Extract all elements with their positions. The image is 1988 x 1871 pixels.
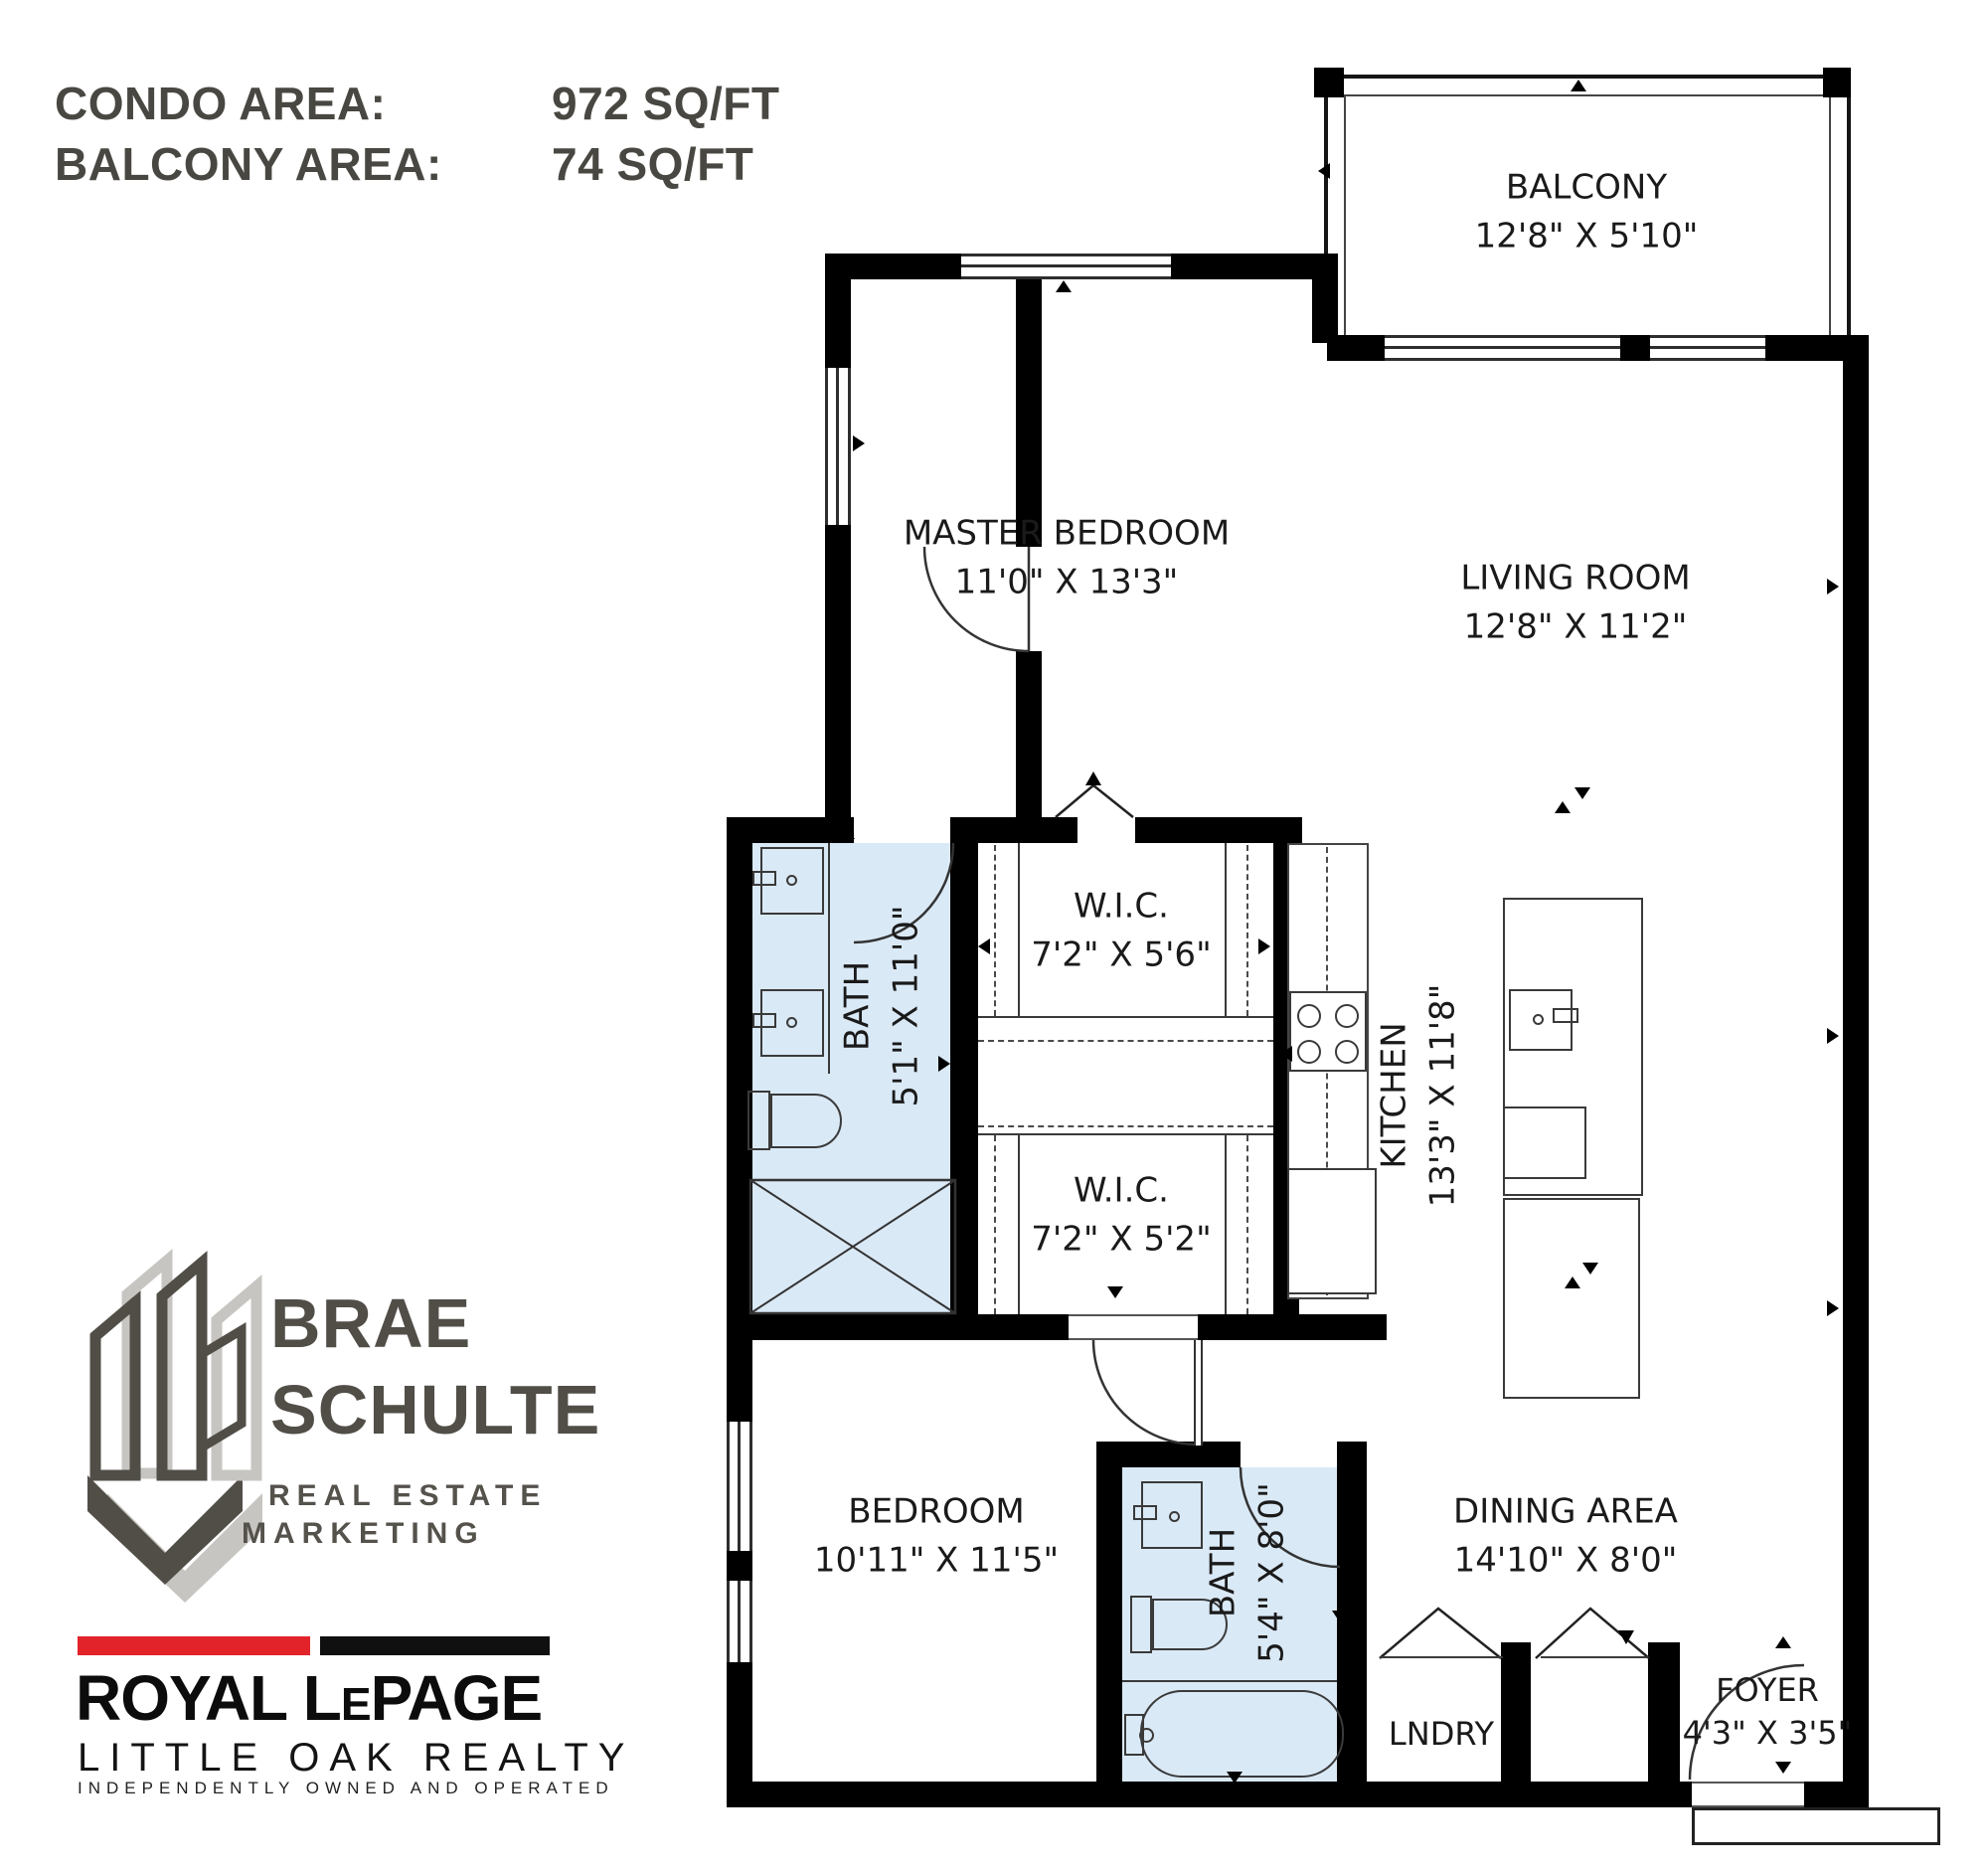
wall [727,1314,1069,1340]
label-wic2: W.I.C. 7'2" X 5'2" [1031,1167,1211,1266]
room-dims: 13'3" X 11'8" [1419,984,1468,1208]
label-master-bedroom: MASTER BEDROOM 11'0" X 13'3" [904,510,1230,608]
bathtub [1140,1690,1344,1778]
room-dims: 7'2" X 5'2" [1031,1216,1211,1265]
wall-right-exterior [1843,335,1869,1807]
brokerage-name-part: PAGE [371,1662,543,1734]
faucet [786,1017,797,1028]
room-name: LNDRY [1389,1711,1494,1757]
wall [950,817,1077,843]
dim-arrow [978,938,990,954]
closet-rod [1246,1135,1248,1314]
closet-header [1380,1656,1503,1658]
wall [1198,1314,1387,1340]
closet-rod [978,1040,1273,1042]
cased-opening [1077,817,1135,843]
room-dims: 12'8" X 5'10" [1475,213,1699,261]
room-name: KITCHEN [1371,984,1419,1208]
dim-arrow [736,1052,747,1068]
wall [727,817,854,843]
wall [1620,335,1650,361]
closet-rod [978,1125,1273,1127]
room-name: DINING AREA [1453,1488,1678,1537]
room-name: FOYER [1683,1669,1853,1712]
closet-rod [994,845,996,1016]
wall [727,1551,752,1581]
bifold-door [1377,1603,1504,1660]
dim-arrow [1775,1636,1791,1648]
label-bath1: BATH 5'1" X 11'0" [834,905,932,1106]
dim-arrow [938,1056,950,1072]
brokerage-name-small-e: E [341,1678,371,1730]
faucet [786,875,797,886]
burner [1335,1004,1359,1028]
wall-bottom-exterior [727,1782,1692,1807]
dim-arrow [1574,787,1590,799]
door-opening [854,817,950,843]
closet-shelf-edge [978,1016,1273,1018]
label-bath2: BATH 5'4" X 8'0" [1200,1482,1298,1662]
room-name: BEDROOM [814,1488,1059,1537]
closet-shelf-edge [1018,843,1020,1016]
dim-arrow [1227,1772,1242,1784]
wall [1135,817,1302,843]
door-opening [1241,1442,1337,1467]
dim-arrow [1258,938,1270,954]
window [961,254,1171,279]
toilet-bowl [770,1094,842,1148]
wall [1804,1782,1869,1807]
room-name: MASTER BEDROOM [904,510,1230,559]
bifold-door [1533,1603,1652,1660]
label-laundry: LNDRY [1389,1711,1494,1757]
label-balcony: BALCONY 12'8" X 5'10" [1475,164,1699,262]
agent-tagline-2: MARKETING [242,1519,485,1549]
window [727,1422,752,1551]
label-kitchen: KITCHEN 13'3" X 11'8" [1371,984,1469,1208]
dim-arrow [1827,579,1839,595]
closet-shelf-edge [978,1133,1273,1135]
label-bedroom: BEDROOM 10'11" X 11'5" [814,1488,1059,1587]
rlp-red-bar [78,1636,310,1655]
room-dims: 11'0" X 13'3" [904,559,1230,607]
room-dims: 10'11" X 11'5" [814,1537,1059,1586]
room-dims: 12'8" X 11'2" [1460,603,1690,652]
closet-rod [1246,845,1248,1016]
area-summary: CONDO AREA: 972 SQ/FT BALCONY AREA: 74 S… [55,74,779,195]
dim-arrow [839,827,855,839]
room-name: W.I.C. [1031,883,1211,932]
burner [1297,1004,1321,1028]
faucet-handle [752,871,776,886]
room-name: LIVING ROOM [1460,555,1690,603]
balcony-slider-door [1385,335,1620,361]
faucet-handle [752,1013,776,1028]
balcony-area-value: 74 SQ/FT [552,134,753,195]
dim-arrow [1280,1046,1292,1062]
balcony-corner-post [1314,68,1344,97]
dim-arrow [1827,1028,1839,1044]
tub-faucet-knob [1139,1728,1154,1743]
wall [825,525,851,843]
wall-bath2-west [1096,1442,1122,1782]
room-name: BATH [1200,1482,1248,1662]
wall-master-living [1016,651,1042,843]
closet-shelf-edge [1225,1133,1227,1314]
wall-closet-pillar [1501,1642,1531,1782]
opening-chevron [1049,765,1143,820]
condo-area-row: CONDO AREA: 972 SQ/FT [55,74,779,134]
room-dims: 4'3" X 3'5" [1683,1712,1853,1755]
counter-edge [828,843,830,1074]
condo-area-value: 972 SQ/FT [552,74,779,134]
door-opening [1069,1314,1198,1340]
closet-shelf-edge [1225,843,1227,1016]
closet-rod [994,1135,996,1314]
dim-arrow [1056,280,1072,292]
window [825,368,851,525]
entry-step [1692,1807,1940,1845]
room-name: W.I.C. [1031,1167,1211,1216]
door-arc-bedroom [1093,1340,1200,1446]
wall-master-living [1016,254,1042,547]
faucet [1169,1511,1180,1522]
brokerage-subname: LITTLE OAK REALTY [78,1738,635,1778]
island-extension [1503,1198,1640,1399]
condo-area-label: CONDO AREA: [55,74,552,134]
dim-arrow [1099,1497,1111,1513]
label-wic1: W.I.C. 7'2" X 5'6" [1031,883,1211,981]
brokerage-name-part: ROYAL L [76,1662,341,1734]
dim-arrow [1571,80,1586,91]
wall [825,254,851,368]
door-leaf [1194,1340,1203,1446]
dim-arrow [1582,1263,1598,1275]
burner [1335,1040,1359,1064]
rlp-black-bar [320,1636,550,1655]
room-dims: 5'1" X 11'0" [883,905,931,1106]
brokerage-tagline: INDEPENDENTLY OWNED AND OPERATED [78,1780,614,1796]
agent-last-name: SCHULTE [270,1375,600,1445]
toilet-tank [747,1091,770,1150]
balcony-area-row: BALCONY AREA: 74 SQ/FT [55,134,779,195]
room-dims: 7'2" X 5'6" [1031,932,1211,980]
dim-arrow [1107,1286,1123,1298]
shower [749,1179,956,1314]
brokerage-name: ROYAL LEPAGE [76,1666,542,1730]
dim-arrow [1775,1762,1791,1774]
room-name: BALCONY [1475,164,1699,213]
wall [727,1662,752,1807]
dim-arrow [1318,163,1330,179]
room-dims: 5'4" X 8'0" [1248,1482,1297,1662]
tub-zone-edge [1122,1680,1337,1682]
faucet-handle [1553,1008,1578,1023]
closet-shelf-edge [1018,1133,1020,1314]
agent-first-name: BRAE [270,1288,471,1358]
entry-door-opening [1692,1782,1804,1807]
dim-arrow [1565,1276,1580,1288]
label-foyer: FOYER 4'3" X 3'5" [1683,1669,1853,1755]
wall-closet-pillar [1648,1642,1680,1782]
window [727,1581,752,1662]
faucet-handle [1133,1505,1157,1520]
closet-header [1541,1656,1648,1658]
dim-arrow [853,435,865,451]
dim-arrow [1827,1300,1839,1316]
burner [1297,1040,1321,1064]
window [1650,335,1765,361]
floor-plan-page: CONDO AREA: 972 SQ/FT BALCONY AREA: 74 S… [0,0,1988,1871]
fridge [1287,1168,1377,1294]
dishwasher [1503,1106,1586,1179]
agent-tagline-1: REAL ESTATE [268,1481,547,1511]
balcony-corner-post [1823,68,1851,97]
wall [1327,335,1385,361]
dim-arrow [1332,1611,1348,1622]
room-name: BATH [834,905,883,1106]
balcony-area-label: BALCONY AREA: [55,134,552,195]
faucet [1533,1014,1544,1025]
room-dims: 14'10" X 8'0" [1453,1537,1678,1586]
wall [1171,254,1338,279]
label-living-room: LIVING ROOM 12'8" X 11'2" [1460,555,1690,653]
dim-arrow [1555,801,1571,813]
label-dining-area: DINING AREA 14'10" X 8'0" [1453,1488,1678,1587]
toilet-tank [1130,1596,1152,1653]
wall [1312,279,1338,343]
